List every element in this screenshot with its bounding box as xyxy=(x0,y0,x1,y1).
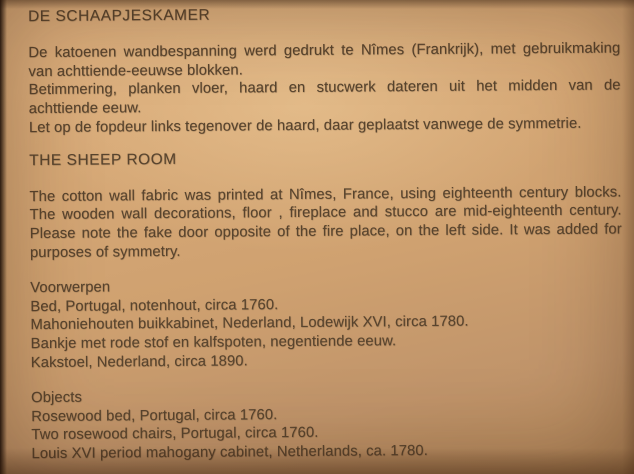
photographed-info-sheet: DE SCHAAPJESKAMER De katoenen wandbespan… xyxy=(0,0,634,474)
dutch-fake-door-note: Let op de fopdeur links tegenover de haa… xyxy=(29,114,621,137)
english-room-title: THE SHEEP ROOM xyxy=(29,147,621,170)
object-item-chair-nl: Kakstoel, Nederland, circa 1890. xyxy=(31,349,623,372)
dutch-paragraph-fabric: De katoenen wandbespanning werd gedrukt … xyxy=(28,39,621,138)
objects-list-english: Objects Rosewood bed, Portugal, circa 17… xyxy=(31,384,624,464)
dutch-room-title: DE SCHAAPJESKAMER xyxy=(28,3,620,26)
document-text: DE SCHAAPJESKAMER De katoenen wandbespan… xyxy=(0,0,634,464)
objects-list-dutch: Voorwerpen Bed, Portugal, notenhout, cir… xyxy=(30,274,623,373)
object-item-cabinet-en: Louis XVI period mahogany cabinet, Nethe… xyxy=(31,441,623,464)
english-line-4: purposes of symmetry. xyxy=(30,239,622,262)
english-paragraph: The cotton wall fabric was printed at Nî… xyxy=(29,183,622,263)
